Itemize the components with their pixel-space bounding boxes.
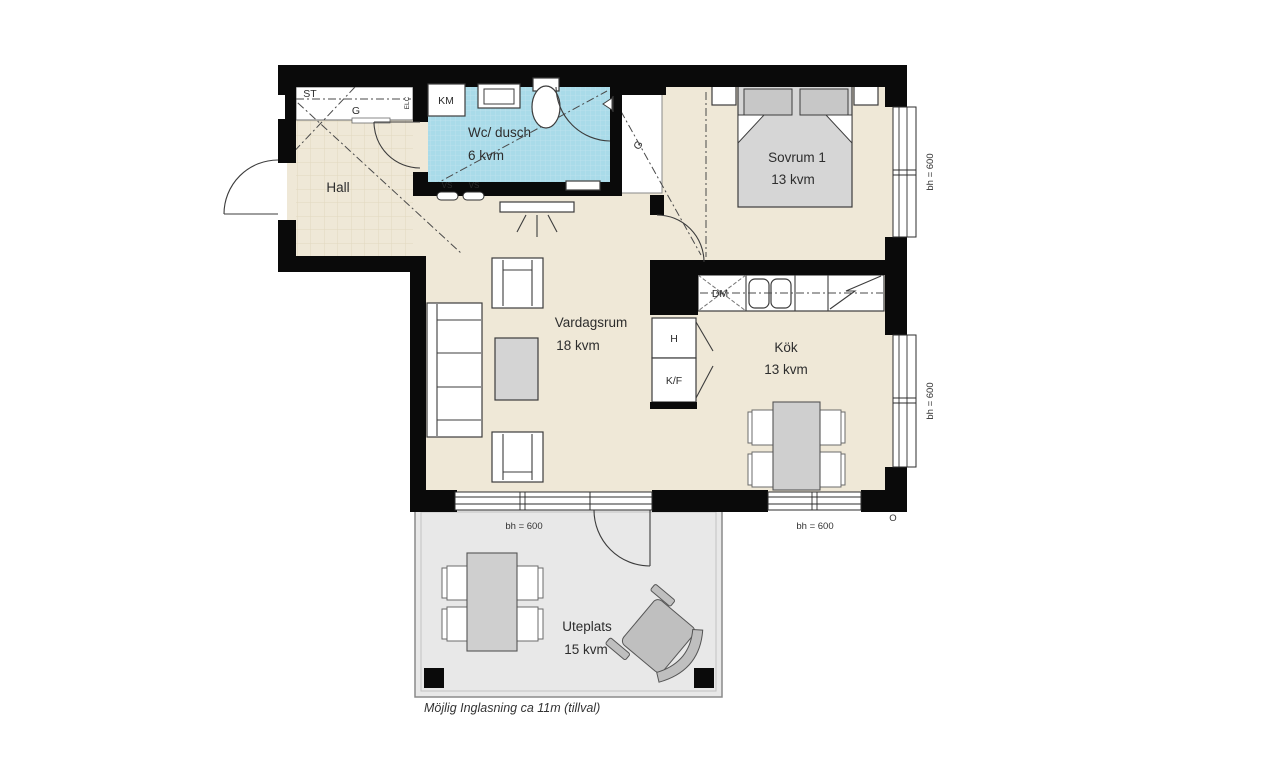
window-sill-label-kitchen-bottom: bh = 600 bbox=[796, 521, 833, 532]
dining-chair bbox=[820, 410, 841, 445]
wall-segment bbox=[652, 490, 768, 512]
water-riser-pill-1 bbox=[437, 192, 458, 200]
corner-mark: O bbox=[889, 513, 896, 524]
room-label-bedroom: Sovrum 1 bbox=[768, 150, 826, 165]
nightstand-right bbox=[854, 85, 878, 105]
room-patio: Uteplats 15 kvm bbox=[415, 506, 722, 697]
room-label-kitchen: Kök bbox=[774, 340, 798, 355]
area-label-kitchen: 13 kvm bbox=[764, 362, 808, 377]
dining-chair-back bbox=[841, 412, 845, 443]
pillow-left bbox=[744, 89, 792, 115]
fixture-label-closet: ST bbox=[303, 88, 317, 100]
patio-post-left bbox=[424, 668, 444, 688]
towel-rail bbox=[566, 181, 600, 190]
wall-segment bbox=[885, 65, 907, 107]
dining-chair-back bbox=[748, 454, 752, 485]
room-label-living: Vardagsrum bbox=[555, 315, 628, 330]
dining-chair bbox=[752, 452, 773, 487]
fixture-label-washing-machine: KM bbox=[438, 95, 454, 107]
dining-chair-back bbox=[748, 412, 752, 443]
window-living-bottom bbox=[455, 492, 590, 510]
room-label-hall: Hall bbox=[326, 180, 349, 195]
wall-segment bbox=[278, 65, 907, 87]
window-kitchen-right bbox=[893, 335, 916, 467]
wall-segment bbox=[885, 237, 907, 335]
patio-chair bbox=[447, 607, 468, 641]
footnote: Möjlig Inglasning ca 11m (tillval) bbox=[424, 701, 600, 715]
window-sill-label-kitchen-right: bh = 600 bbox=[925, 382, 936, 419]
wardrobe-bedroom bbox=[618, 90, 662, 193]
fixture-label-tall-cabinet: H bbox=[670, 333, 678, 345]
dining-chair-back bbox=[841, 454, 845, 485]
room-label-bathroom: Wc/ dusch bbox=[468, 125, 531, 140]
patio-chair-back bbox=[442, 609, 447, 639]
dining-chair bbox=[752, 410, 773, 445]
fixture-label-dishwasher: DM bbox=[712, 288, 728, 300]
fixture-label-fridge-freezer: K/F bbox=[666, 375, 682, 387]
sideboard bbox=[500, 202, 574, 212]
patio-door-glass bbox=[590, 492, 652, 510]
patio-chair bbox=[447, 566, 468, 600]
patio-chair bbox=[517, 607, 538, 641]
water-riser-pill-2 bbox=[463, 192, 484, 200]
patio-chair-back bbox=[538, 568, 543, 598]
fixture-label-hall-wardrobe: G bbox=[352, 105, 360, 117]
pillow-right bbox=[800, 89, 848, 115]
armchair-bottom bbox=[492, 432, 543, 482]
fixture-label-vs1: VS bbox=[442, 181, 453, 190]
armchair-top bbox=[492, 258, 543, 308]
patio-post-right bbox=[694, 668, 714, 688]
floor-plan-page: Uteplats 15 kvm bbox=[0, 0, 1280, 758]
dining-table bbox=[773, 402, 820, 490]
wall-segment bbox=[650, 195, 664, 215]
dining-chair bbox=[820, 452, 841, 487]
area-label-living: 18 kvm bbox=[556, 338, 600, 353]
window-bedroom-right bbox=[893, 107, 916, 237]
fixture-label-electrical: ELC bbox=[404, 96, 411, 109]
patio-table bbox=[467, 553, 517, 651]
window-sill-label-bedroom-right: bh = 600 bbox=[925, 153, 936, 190]
window-sill-label-living: bh = 600 bbox=[505, 521, 542, 532]
area-label-bedroom: 13 kvm bbox=[771, 172, 815, 187]
sofa bbox=[427, 303, 482, 437]
wall-segment bbox=[616, 65, 666, 95]
wall-segment bbox=[650, 260, 698, 315]
nightstand-left bbox=[712, 85, 736, 105]
entrance-door bbox=[224, 160, 278, 214]
wall-segment bbox=[413, 87, 428, 122]
area-label-bathroom: 6 kvm bbox=[468, 148, 504, 163]
toilet bbox=[532, 78, 560, 128]
floor-plan-svg: Uteplats 15 kvm bbox=[0, 0, 1280, 758]
area-label-patio: 15 kvm bbox=[564, 642, 608, 657]
wall-segment bbox=[885, 467, 907, 512]
fixture-label-vs2: VS bbox=[469, 181, 480, 190]
wall-segment bbox=[410, 490, 457, 512]
hall-tile-floor bbox=[296, 120, 413, 256]
wall-segment bbox=[410, 256, 426, 512]
patio-chair-back bbox=[442, 568, 447, 598]
coffee-table bbox=[495, 338, 538, 400]
patio-chair-back bbox=[538, 609, 543, 639]
window-kitchen-bottom bbox=[768, 492, 861, 510]
patio-chair bbox=[517, 566, 538, 600]
bathroom-sink-basin bbox=[484, 89, 514, 104]
room-label-patio: Uteplats bbox=[562, 619, 612, 634]
wall-segment bbox=[278, 256, 425, 272]
wall-segment bbox=[650, 402, 697, 409]
wall-niche bbox=[276, 95, 285, 119]
